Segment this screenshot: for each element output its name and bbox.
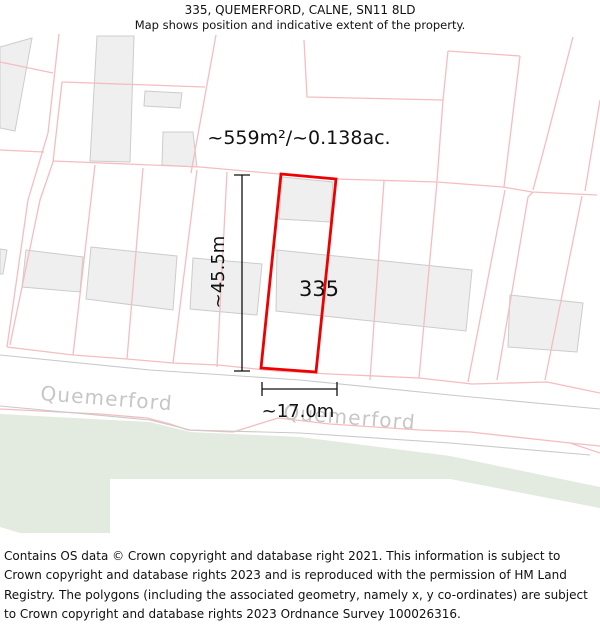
parcel-line: [191, 35, 216, 173]
frontage-dimension-line: [262, 382, 337, 396]
plot-number-label: 335: [299, 277, 339, 301]
building-on-plot: [279, 177, 333, 222]
page-subtitle: Map shows position and indicative extent…: [0, 18, 600, 33]
parcel-line: [10, 82, 62, 345]
attribution-text: Contains OS data © Crown copyright and d…: [4, 547, 596, 625]
parcel-line: [533, 37, 573, 190]
building: [0, 249, 7, 274]
parcel-line: [62, 82, 205, 87]
frontage-label: ~17.0m: [262, 401, 335, 422]
parcel-line: [0, 150, 44, 152]
parcel-line: [585, 100, 600, 191]
property-map: Quemerford Quemerford ~45.5m ~17.0m ~559…: [0, 0, 600, 625]
building: [22, 250, 83, 292]
parcel-line: [304, 40, 443, 100]
building: [0, 38, 32, 131]
parcel-divider: [497, 192, 533, 380]
green-area: [0, 414, 600, 533]
building: [162, 132, 197, 167]
building: [90, 36, 134, 162]
parcel-divider: [468, 190, 505, 382]
road-label-left: Quemerford: [40, 381, 174, 415]
building: [144, 91, 182, 108]
page-title: 335, QUEMERFORD, CALNE, SN11 8LD: [0, 2, 600, 18]
area-label: ~559m²/~0.138ac.: [207, 127, 390, 149]
page-header: 335, QUEMERFORD, CALNE, SN11 8LD Map sho…: [0, 2, 600, 33]
depth-label: ~45.5m: [208, 236, 229, 309]
parcel-line: [437, 51, 520, 187]
property-map-page: { "header": { "title": "335, QUEMERFORD,…: [0, 0, 600, 625]
building: [508, 295, 583, 352]
